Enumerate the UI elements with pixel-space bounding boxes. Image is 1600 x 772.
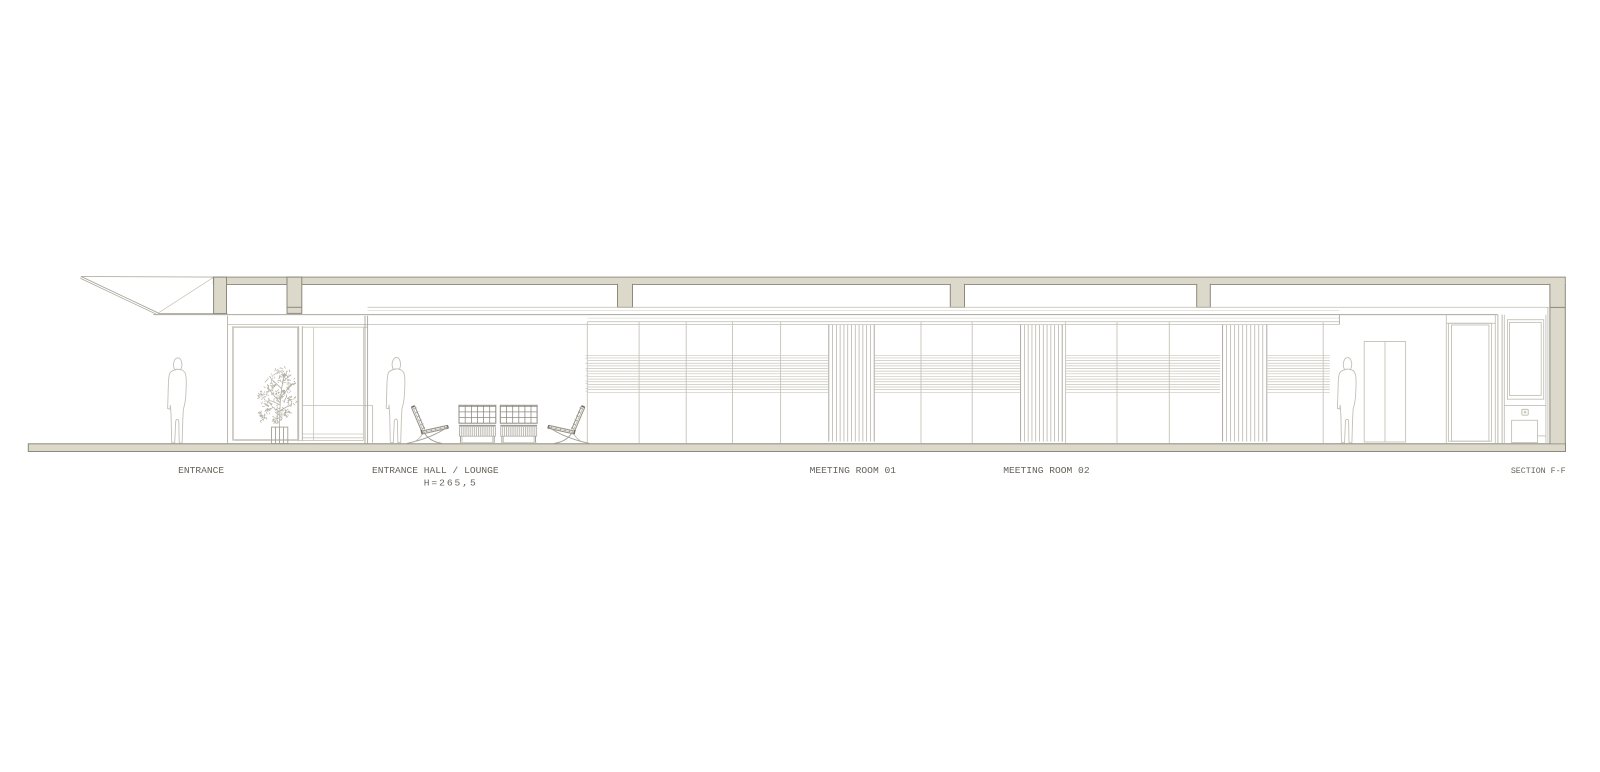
svg-text:H=265,5: H=265,5 [424,478,478,489]
svg-text:ENTRANCE HALL / LOUNGE: ENTRANCE HALL / LOUNGE [372,465,499,476]
svg-text:MEETING ROOM 02: MEETING ROOM 02 [1003,465,1090,476]
svg-text:MEETING ROOM 01: MEETING ROOM 01 [810,465,897,476]
svg-text:SECTION F-F: SECTION F-F [1511,467,1566,476]
svg-text:ENTRANCE: ENTRANCE [178,465,224,476]
